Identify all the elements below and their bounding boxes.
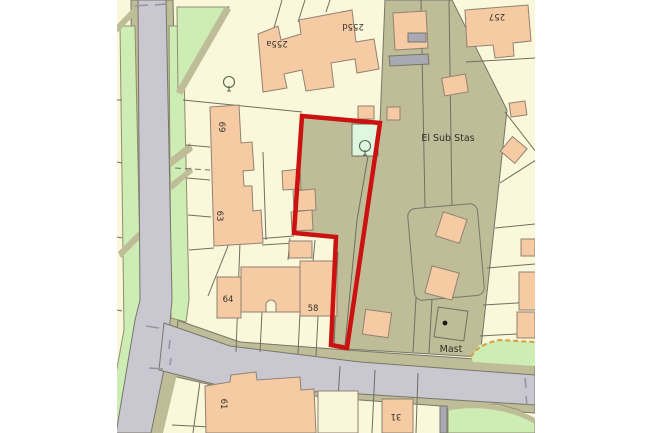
wall-strip [440,406,447,433]
site-plan-map: 255a 255d 257 69 63 64 58 61 31 El Sub S… [0,0,650,433]
label-257: 257 [489,11,505,21]
label-61: 61 [218,399,228,410]
map-canvas: 255a 255d 257 69 63 64 58 61 31 El Sub S… [0,0,650,433]
building-small [519,272,536,310]
label-el-sub-stas: El Sub Stas [421,133,474,144]
building-outline [318,391,358,433]
building-small [358,106,374,119]
label-255d: 255d [342,21,364,31]
building-small [387,107,400,120]
building-arch-passage [266,300,276,312]
label-64: 64 [223,295,234,305]
label-69: 69 [216,122,226,133]
label-58: 58 [308,304,319,314]
mast-point [443,321,448,326]
label-31: 31 [391,411,402,421]
building-step [289,241,312,258]
label-255a: 255a [266,38,287,48]
building-small [362,309,391,337]
building-outbuilding [442,74,469,96]
building-small [509,101,527,117]
label-63: 63 [214,211,224,222]
mast-enclosure [434,307,468,341]
building-small [521,239,535,256]
building-gray-section [408,33,426,42]
building-small [517,312,535,338]
label-mast: Mast [440,344,463,355]
building-gray-section [389,54,429,66]
building-substation-block [393,11,428,50]
